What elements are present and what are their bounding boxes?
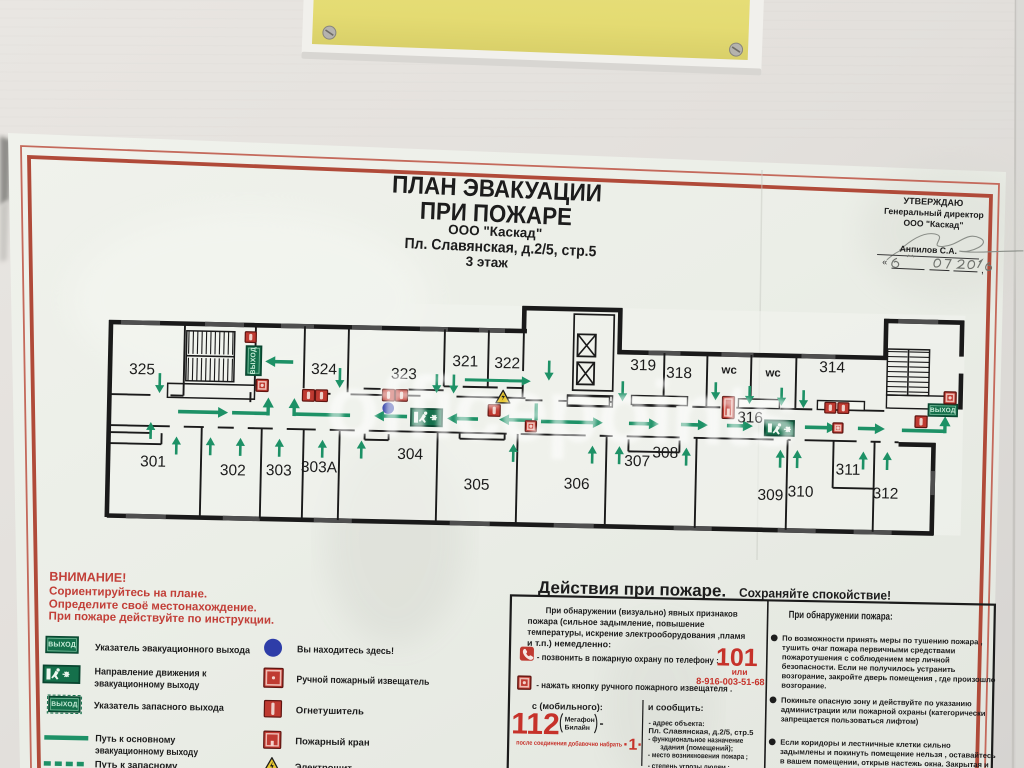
svg-text:ВЫХОД: ВЫХОД: [930, 407, 956, 415]
svg-text:310: 310: [787, 483, 814, 501]
svg-text:311: 311: [835, 461, 860, 479]
svg-text:312: 312: [872, 485, 898, 503]
svg-text:Путь к запасному: Путь к запасному: [95, 759, 178, 768]
svg-text:Электрощит: Электрощит: [295, 762, 353, 768]
svg-text:314: 314: [819, 359, 846, 377]
svg-text:Билайн: Билайн: [564, 723, 590, 731]
svg-text:ВЫХОД: ВЫХОД: [51, 701, 77, 709]
svg-text:Вы находитесь здесь!: Вы находитесь здесь!: [297, 644, 394, 657]
svg-text:301: 301: [140, 453, 166, 471]
svg-text:«: «: [882, 257, 887, 267]
svg-text:и т.п.) немедленно:: и т.п.) немедленно:: [527, 638, 611, 650]
svg-text:302: 302: [220, 462, 246, 480]
svg-text:ВНИМАНИЕ!: ВНИМАНИЕ!: [49, 569, 126, 584]
svg-text:303А: 303А: [301, 459, 338, 477]
svg-text:Путь к основному: Путь к основному: [95, 733, 176, 746]
svg-text:При обнаружении пожара:: При обнаружении пожара:: [789, 609, 893, 623]
svg-text:,: ,: [981, 264, 985, 276]
svg-text:-: -: [599, 716, 603, 730]
svg-text:officepoints: officepoints: [325, 356, 797, 465]
svg-text:- место возникновения пожара ;: - место возникновения пожара ;: [648, 750, 748, 761]
svg-text:эвакуационному выходу: эвакуационному выходу: [94, 678, 200, 691]
svg-text:ВЫХОД: ВЫХОД: [48, 641, 76, 649]
svg-text:Пожарный кран: Пожарный кран: [295, 736, 370, 748]
svg-text:306: 306: [563, 475, 589, 493]
svg-text:эвакуационному выходу: эвакуационному выходу: [95, 745, 199, 758]
svg-text:Огнетушитель: Огнетушитель: [296, 705, 364, 717]
svg-text:или: или: [732, 667, 748, 677]
svg-text:ВЫХОД: ВЫХОД: [250, 347, 258, 375]
svg-text:Мегафон: Мегафон: [565, 716, 595, 724]
svg-text:309: 309: [757, 487, 783, 505]
svg-text:303: 303: [266, 462, 292, 480]
svg-text:возгорание.: возгорание.: [781, 681, 826, 691]
svg-text:- степень угрозы людям ;: - степень угрозы людям ;: [648, 761, 730, 768]
svg-text:325: 325: [129, 361, 155, 379]
svg-text:и сообщить:: и сообщить:: [648, 702, 704, 713]
svg-text:·1·: ·1·: [623, 737, 643, 754]
svg-text:Направление движения к: Направление движения к: [94, 666, 206, 679]
svg-text:112: 112: [511, 707, 560, 741]
svg-text:305: 305: [463, 476, 489, 494]
svg-text:3 этаж: 3 этаж: [465, 254, 508, 271]
